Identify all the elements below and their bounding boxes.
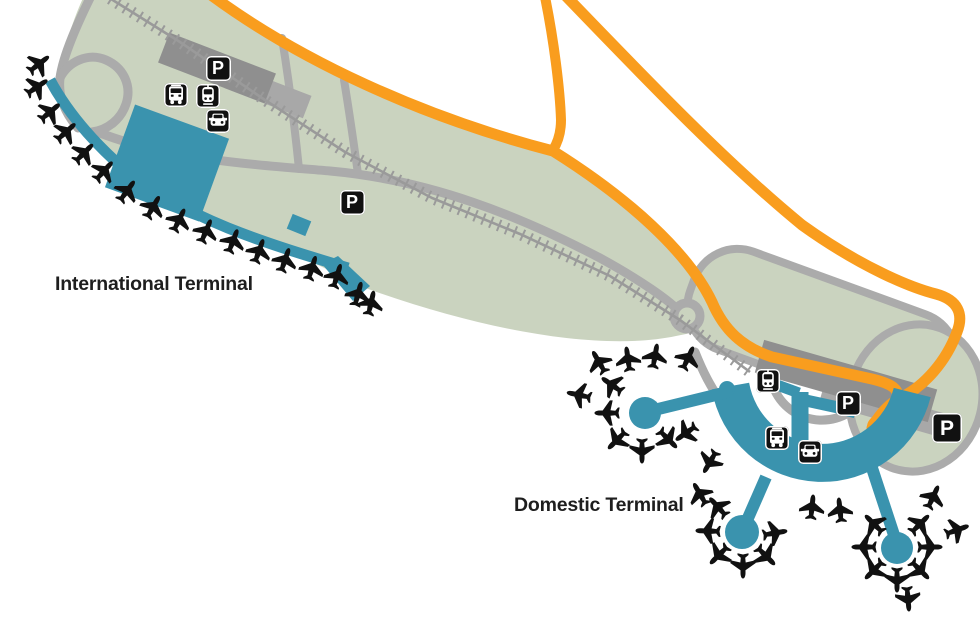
bus-icon [765,426,789,450]
airplane-icon [21,46,56,81]
parking-icon: P [836,391,861,416]
parking-icon: P [932,413,962,443]
airplane-icon [595,368,630,403]
airplane-icon [599,422,635,458]
train-icon [196,84,220,108]
airplane-icon [640,342,669,371]
airplane-icon [595,400,620,425]
domestic-terminal-label: Domestic Terminal [514,494,684,517]
car-icon [798,440,822,464]
airplane-icon [582,345,616,379]
train-icon [756,369,780,393]
airplane-icon [798,493,826,521]
airplane-icon [760,518,789,547]
airplane-icon [695,518,721,544]
airport-map: International Terminal Domestic Terminal… [0,0,980,624]
domestic-satellite-node [629,397,661,429]
airplane-icon [826,496,854,524]
map-canvas [0,0,980,624]
parking-icon: P [340,190,365,215]
airplane-icon [941,514,973,546]
parking-icon: P [206,56,231,81]
highway-branch [544,0,561,150]
airplane-icon [917,534,942,559]
airplane-icon [683,477,717,511]
car-icon [206,109,230,133]
airplane-icon [916,480,949,513]
airplane-icon [629,438,654,463]
airplane-icon [614,345,642,373]
airplane-icon [730,553,755,578]
airplane-icon [852,534,877,559]
international-terminal-label: International Terminal [55,273,253,296]
bus-icon [164,83,188,107]
domestic-satellite-node [725,515,759,549]
domestic-satellite-node [881,532,913,564]
airplane-icon [564,380,594,410]
airplane-icon [693,445,727,479]
